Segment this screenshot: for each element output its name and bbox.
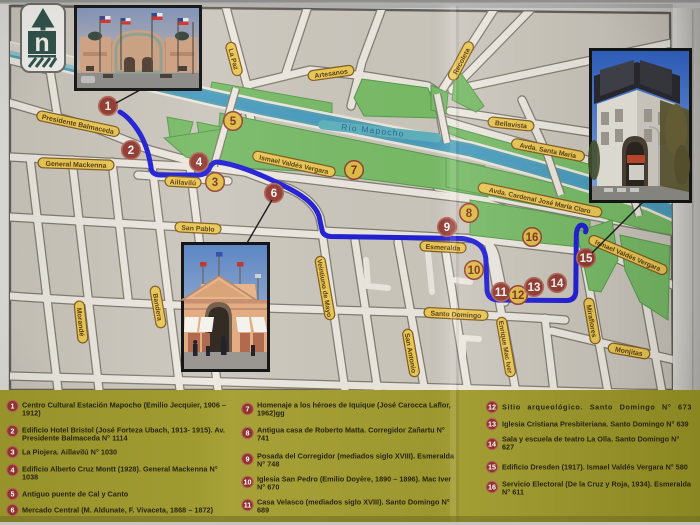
svg-text:8: 8	[246, 429, 250, 438]
svg-text:13: 13	[488, 420, 496, 429]
svg-text:Casa Velasco (mediados siglo X: Casa Velasco (mediados siglo XVIII). San…	[257, 498, 450, 507]
svg-text:1: 1	[11, 402, 15, 411]
svg-text:6: 6	[11, 506, 15, 515]
svg-text:15: 15	[488, 463, 496, 472]
svg-text:5: 5	[11, 490, 15, 499]
svg-text:Posada del Corregidor (mediado: Posada del Corregidor (mediados siglo XV…	[257, 452, 455, 461]
svg-text:627: 627	[502, 443, 514, 452]
svg-text:Antigua casa de Roberto Matta.: Antigua casa de Roberto Matta. Corregido…	[257, 426, 445, 435]
svg-text:Iglesia San Pedro (Emilio Doyè: Iglesia San Pedro (Emilio Doyère, 1890 –…	[257, 475, 451, 484]
svg-text:16: 16	[488, 483, 496, 492]
svg-text:Sala y escuela de teatro La Ol: Sala y escuela de teatro La Olla. Santo …	[502, 435, 679, 444]
svg-text:Antiguo puente de Cal y Canto: Antiguo puente de Cal y Canto	[22, 490, 129, 499]
svg-text:1038: 1038	[22, 473, 38, 482]
svg-text:Edificio Alberto Cruz Montt (1: Edificio Alberto Cruz Montt (1928). Gene…	[22, 465, 218, 474]
svg-text:14: 14	[488, 440, 496, 449]
svg-text:1912): 1912)	[22, 409, 41, 418]
svg-text:Centro Cultural Estación Mapoc: Centro Cultural Estación Mapocho (Emilio…	[22, 401, 226, 410]
svg-text:9: 9	[246, 455, 250, 464]
svg-text:10: 10	[244, 478, 252, 487]
svg-text:Iglesia Cristiana Presbiterian: Iglesia Cristiana Presbiteriana. Santo D…	[502, 420, 689, 429]
svg-text:N° 670: N° 670	[257, 483, 279, 492]
svg-text:N° 611: N° 611	[502, 488, 524, 497]
svg-text:N° 748: N° 748	[257, 460, 279, 469]
svg-text:Servicio Electoral (De la Cruz: Servicio Electoral (De la Cruz y Roja, 1…	[502, 480, 692, 489]
svg-text:Edificio Dresden (1917). Ismae: Edificio Dresden (1917). Ismael Valdés V…	[502, 463, 688, 472]
svg-text:Sitio arqueológico. Santo Domi: Sitio arqueológico. Santo Domingo N° 673	[502, 403, 692, 412]
svg-text:Mercado Central (M. Aldunate,: Mercado Central (M. Aldunate, F. Vivacet…	[22, 506, 214, 515]
svg-text:12: 12	[488, 403, 496, 412]
svg-text:La Piojera. Aillavilú N° 1030: La Piojera. Aillavilú N° 1030	[22, 448, 117, 457]
svg-text:Homenaje a los héroes de Iquiq: Homenaje a los héroes de Iquique (José C…	[257, 401, 451, 410]
svg-text:3: 3	[11, 448, 15, 457]
svg-text:4: 4	[11, 466, 15, 475]
svg-text:1962)gg: 1962)gg	[257, 409, 285, 418]
svg-text:2: 2	[11, 427, 15, 436]
svg-text:741: 741	[257, 434, 269, 443]
svg-text:11: 11	[244, 501, 252, 510]
svg-text:Presidente Balmaceda N° 1114: Presidente Balmaceda N° 1114	[22, 434, 128, 443]
svg-text:7: 7	[246, 405, 250, 414]
svg-text:689: 689	[257, 506, 269, 515]
